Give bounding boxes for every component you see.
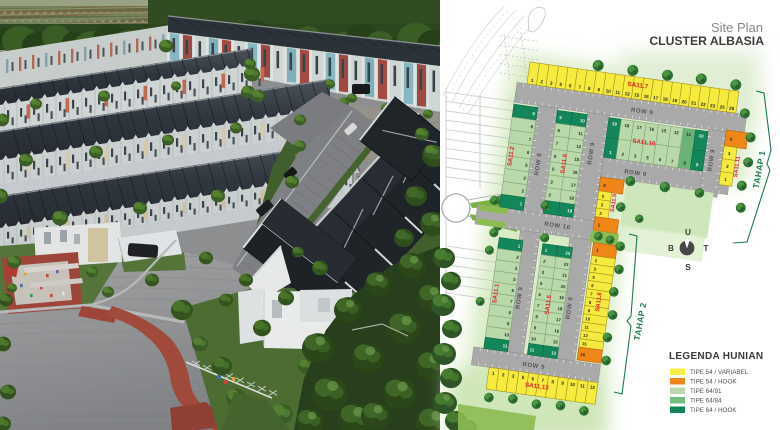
svg-text:TIPE 64 / HOOK: TIPE 64 / HOOK [690,407,737,414]
svg-text:T: T [703,244,708,253]
svg-text:U: U [685,228,691,237]
svg-text:S: S [685,263,691,272]
svg-text:B: B [668,244,674,253]
svg-text:TIPE 54 / VARIABEL: TIPE 54 / VARIABEL [690,369,749,376]
svg-text:TIPE 64/91: TIPE 64/91 [690,388,722,395]
svg-text:LEGENDA HUNIAN: LEGENDA HUNIAN [669,351,763,362]
svg-text:TIPE 64/84: TIPE 64/84 [690,398,722,405]
svg-text:TIPE 54 / HOOK: TIPE 54 / HOOK [690,379,737,386]
svg-text:Site Plan: Site Plan [711,20,763,35]
svg-text:CLUSTER ALBASIA: CLUSTER ALBASIA [649,34,764,48]
